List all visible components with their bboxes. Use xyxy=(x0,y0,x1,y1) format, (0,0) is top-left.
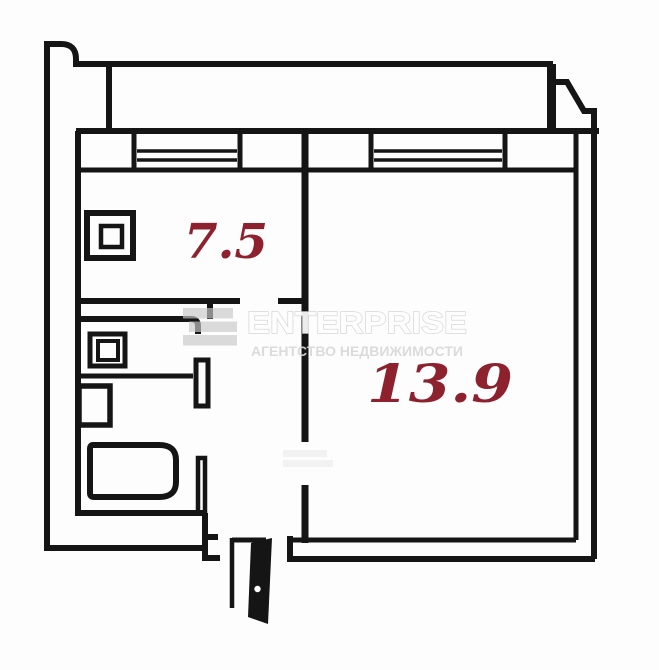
door-leaf xyxy=(248,538,272,624)
watermark-fragment-bar xyxy=(283,460,333,467)
bathroom-wall-pier-upper xyxy=(196,360,208,406)
watermark-logo-bar xyxy=(183,335,237,346)
kitchen-area-label: 7.5 xyxy=(184,214,268,270)
watermark-fragment-bar xyxy=(283,450,327,457)
living-room-area-label: 13.9 xyxy=(367,354,513,415)
neighbor-balcony-step xyxy=(550,82,594,131)
window-band xyxy=(76,131,599,170)
watermark-logo-icon xyxy=(183,308,237,346)
watermark-logo-bar xyxy=(183,308,233,319)
watermark-fragment xyxy=(283,450,333,467)
toilet-icon xyxy=(79,386,110,425)
bathtub-icon xyxy=(90,445,176,497)
floor-plan-drawing: ENTERPRISE АГЕНТСТВО НЕДВИЖИМОСТИ 7.5 13… xyxy=(0,0,659,670)
sink-inner-icon xyxy=(98,341,118,360)
floor-plan: ENTERPRISE АГЕНТСТВО НЕДВИЖИМОСТИ 7.5 13… xyxy=(0,0,659,670)
watermark-brand: ENTERPRISE xyxy=(247,305,467,340)
entrance-door-icon xyxy=(232,538,272,624)
window-glass-lines xyxy=(137,151,502,160)
fixtures xyxy=(79,213,176,497)
bathroom-wall-pier-lower xyxy=(198,458,205,513)
balcony xyxy=(109,64,553,131)
stove-inner-icon xyxy=(101,226,122,247)
watermark-logo-bar xyxy=(189,322,237,333)
door-handle-icon xyxy=(254,586,260,592)
